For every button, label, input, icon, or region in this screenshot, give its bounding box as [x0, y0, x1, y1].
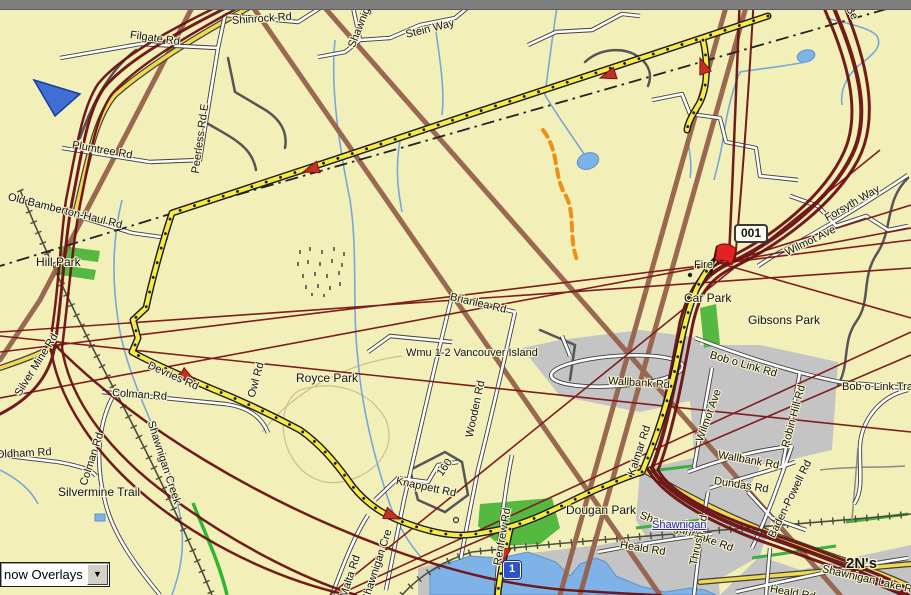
chevron-down-icon: ▼ [93, 570, 102, 579]
minor-gray-roads [820, 448, 905, 520]
route-arrow-icons [178, 56, 711, 565]
blue-triangle-icon [34, 80, 80, 116]
overlay-dropdown[interactable]: now Overlays ▼ [0, 562, 110, 587]
orange-trail [543, 130, 578, 262]
map-graphics [0, 0, 911, 595]
dropdown-arrow-button[interactable]: ▼ [87, 564, 108, 585]
fire-station-dot [688, 273, 692, 277]
railroad-dashdot [0, 2, 911, 266]
window-top-bar [0, 0, 911, 10]
marsh-symbols [298, 247, 344, 297]
overlay-dropdown-value: now Overlays [1, 567, 87, 582]
map-canvas[interactable]: Filgate RdShinrock RdShawnigStein WayBeP… [0, 0, 911, 595]
